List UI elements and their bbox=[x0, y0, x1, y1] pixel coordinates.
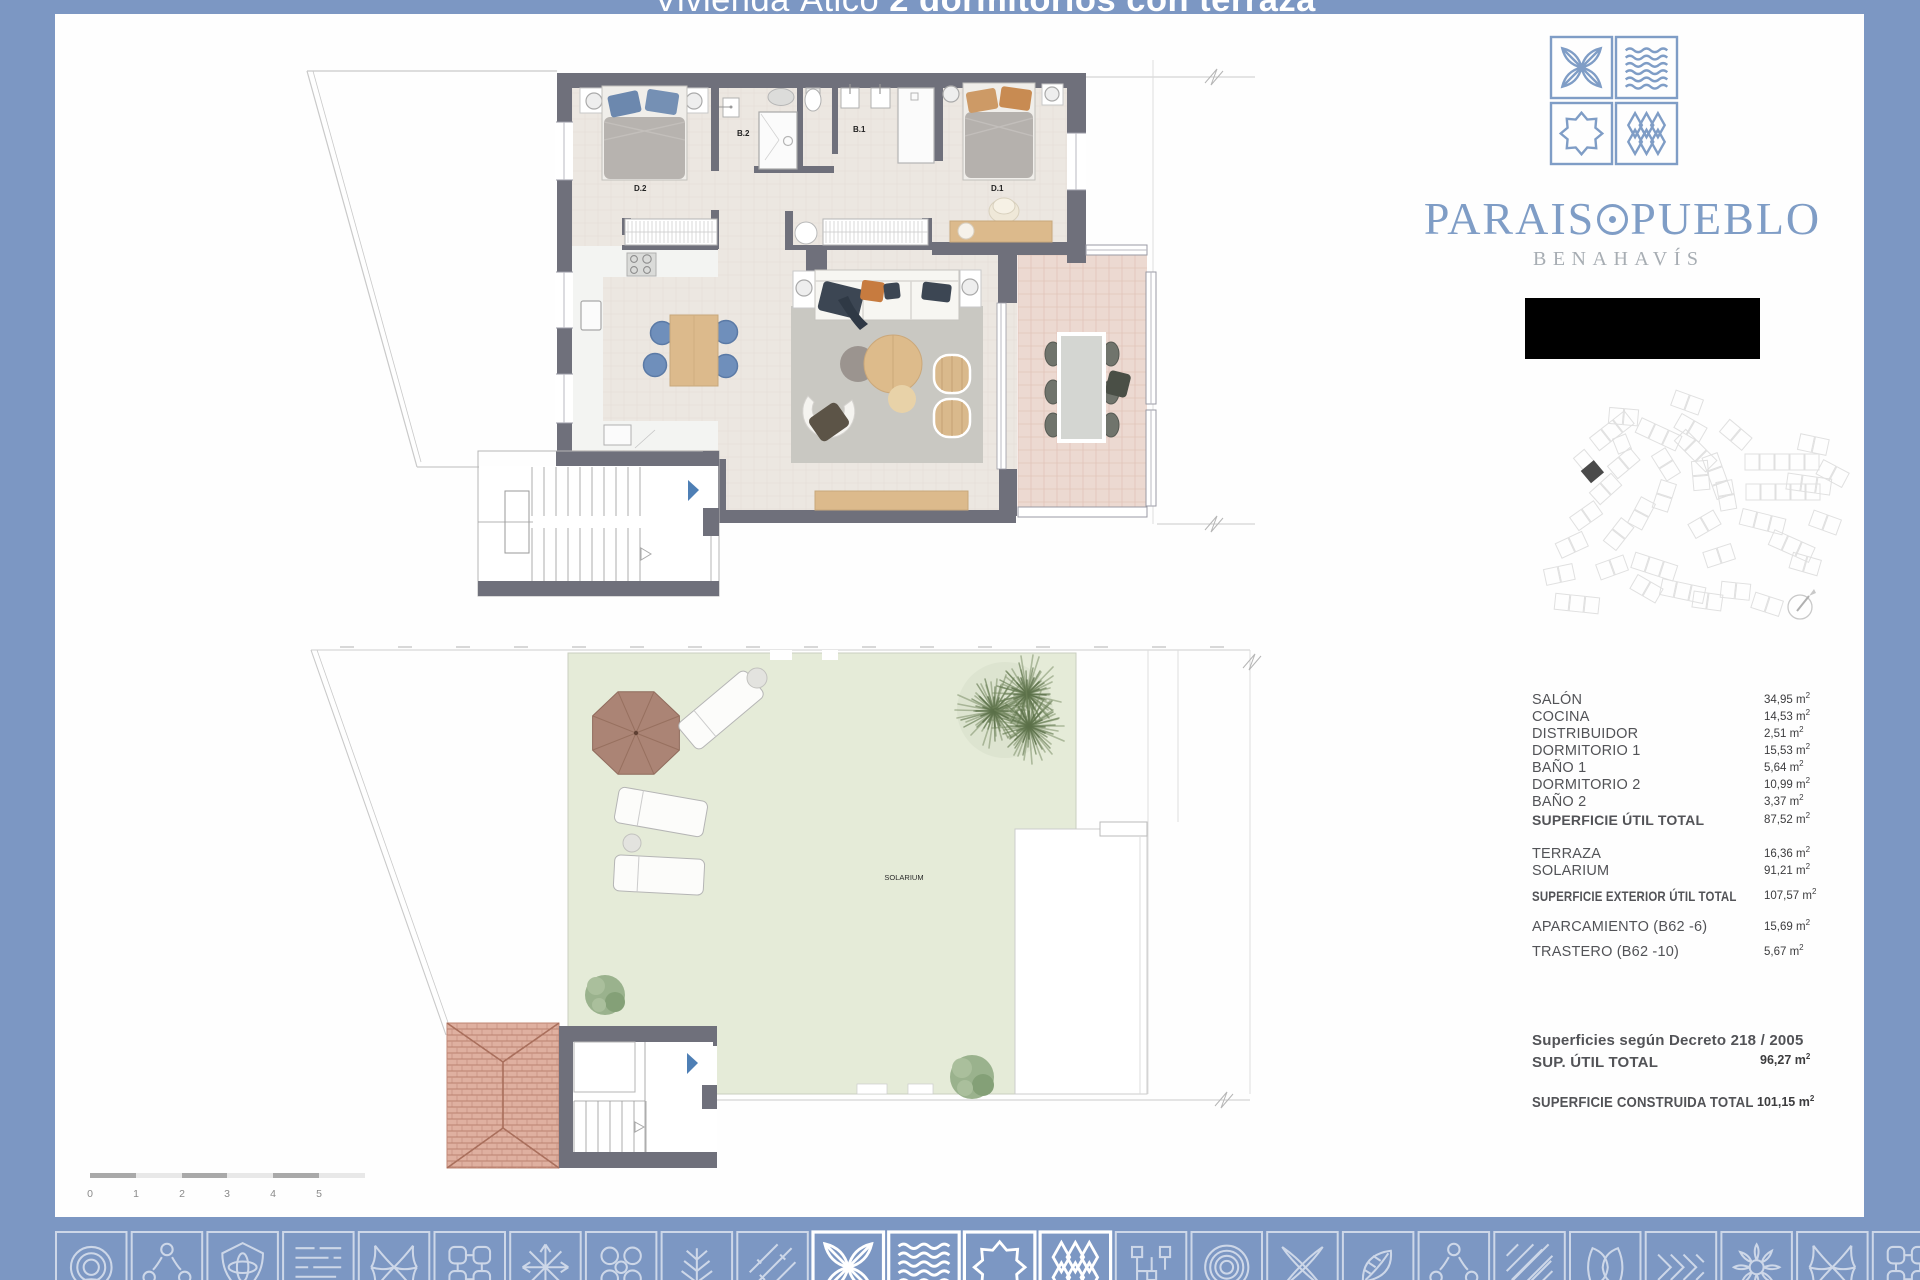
svg-text:B.2: B.2 bbox=[737, 129, 750, 138]
svg-text:2: 2 bbox=[179, 1188, 185, 1200]
svg-text:0: 0 bbox=[87, 1188, 93, 1200]
svg-text:SOLARIUM: SOLARIUM bbox=[884, 873, 923, 882]
svg-text:3: 3 bbox=[224, 1188, 230, 1200]
svg-text:5: 5 bbox=[316, 1188, 322, 1200]
svg-text:D.1: D.1 bbox=[991, 184, 1004, 193]
svg-text:B.1: B.1 bbox=[853, 125, 866, 134]
svg-text:1: 1 bbox=[133, 1188, 139, 1200]
svg-text:4: 4 bbox=[270, 1188, 276, 1200]
svg-text:D.2: D.2 bbox=[634, 184, 647, 193]
